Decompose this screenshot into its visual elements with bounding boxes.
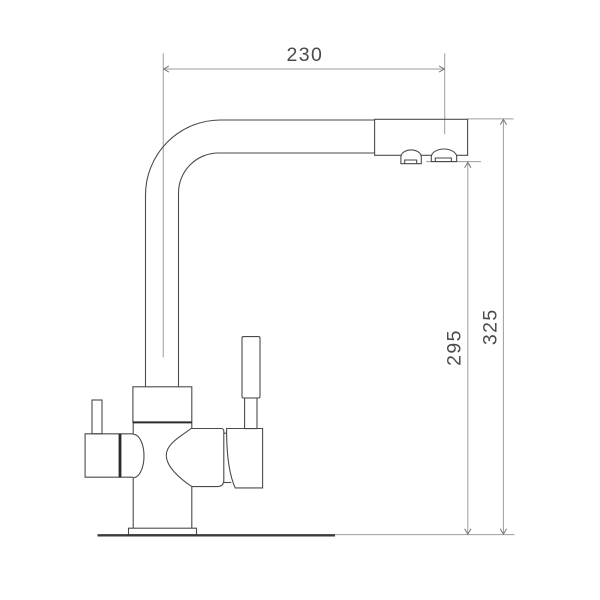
- svg-text:295: 295: [443, 329, 465, 366]
- svg-text:230: 230: [287, 44, 324, 66]
- svg-text:325: 325: [480, 308, 502, 345]
